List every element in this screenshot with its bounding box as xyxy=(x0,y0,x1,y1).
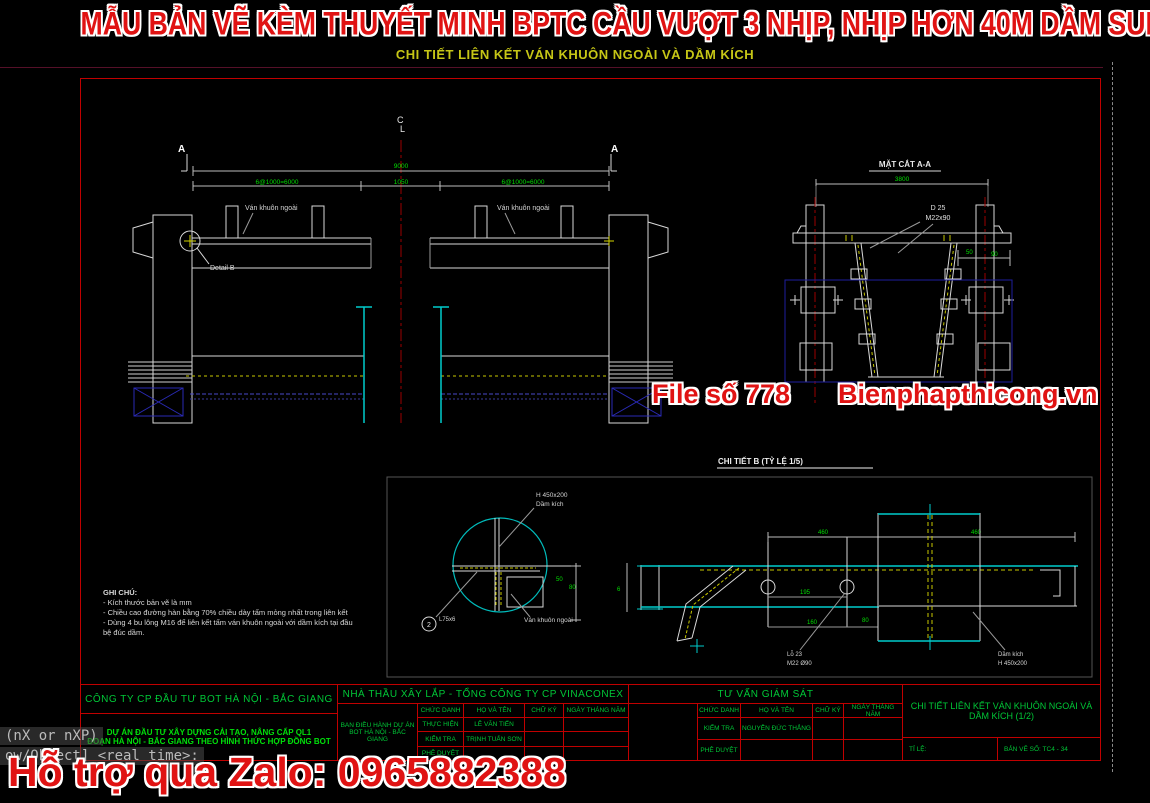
sheet-border-right xyxy=(1100,78,1101,761)
banner-divider xyxy=(0,67,1103,68)
sheet-margin-dashed xyxy=(1112,62,1113,772)
hole-label-1: Lỗ 23 xyxy=(787,651,803,658)
supervisor-r2-role: PHÊ DUYỆT xyxy=(697,739,741,761)
jack-line xyxy=(356,307,449,423)
end-wall-right xyxy=(609,215,648,423)
supervisor-col-role: CHỨC DANH xyxy=(697,703,741,718)
jack-size-label: H 450x200 xyxy=(536,492,568,499)
supervisor-col-date: NGÀY THÁNG NĂM xyxy=(843,703,903,718)
plan-detail-view: 460 460 195 160 80 Lỗ 23 M22 Ø90 Dầm kíc… xyxy=(641,504,1078,667)
note-line: - Kích thước bản vẽ là mm xyxy=(103,598,383,608)
contractor-r2-name: TRỊNH TUẤN SƠN xyxy=(463,731,525,747)
notes-title: GHI CHÚ: xyxy=(103,588,383,598)
supervisor-r2-signature xyxy=(812,739,844,761)
section-mark-a-right: A xyxy=(611,144,618,155)
formwork-post xyxy=(312,206,324,238)
contractor-r1-name: LÊ VĂN TIẾN xyxy=(463,717,525,732)
formwork-label-right: Ván khuôn ngoài xyxy=(497,205,550,212)
contractor-r3-date xyxy=(563,746,629,761)
contractor-col-date: NGÀY THÁNG NĂM xyxy=(563,703,629,718)
contractor-r1-date xyxy=(563,717,629,732)
note-line: - Dùng 4 bu lông M16 để liên kết tấm ván… xyxy=(103,618,383,628)
sheet-title-line1: CHI TIẾT LIÊN KẾT VÁN KHUÔN NGOÀI VÀ xyxy=(911,701,1093,711)
supervisor-col-name: HỌ VÀ TÊN xyxy=(740,703,813,718)
plan-dim-top-left: 460 xyxy=(818,530,829,536)
project-line2: ĐOẠN HÀ NỘI - BẮC GIANG THEO HÌNH THỨC H… xyxy=(87,737,331,746)
supervisor-r1-signature xyxy=(812,717,844,740)
contractor-r2-date xyxy=(563,731,629,747)
cross-beam xyxy=(793,233,1011,243)
scale-cell: TỈ LỆ: xyxy=(902,737,998,761)
angle-label: L75x6 xyxy=(439,617,456,623)
support-stack-left xyxy=(128,362,192,382)
dim-right: 6@1000=6000 xyxy=(502,179,545,186)
jack-label: Dầm kích xyxy=(536,499,564,508)
note-line: bệ đúc dầm. xyxy=(103,628,383,638)
note-line: - Chiều cao đường hàn bằng 70% chiều dày… xyxy=(103,608,383,618)
contractor-r2-role: KIỂM TRA xyxy=(417,731,464,747)
section-aa-view: MẶT CẮT A-A 3800 xyxy=(785,160,1014,404)
section-dim-b: 90 xyxy=(991,252,998,258)
drawing-number-cell: BẢN VẼ SỐ: TC4 - 34 xyxy=(997,737,1101,761)
contractor-col-role: CHỨC DANH xyxy=(417,703,464,718)
elevation-view: C L A A 9000 6@1000=6000 1050 6@1000=600… xyxy=(128,115,673,423)
project-line1: DỰ ÁN ĐẦU TƯ XÂY DỰNG CẢI TẠO, NÂNG CẤP … xyxy=(107,728,312,737)
contractor-col-name: HỌ VÀ TÊN xyxy=(463,703,525,718)
contractor-r1-signature xyxy=(524,717,564,732)
bolt-label-d25: D 25 xyxy=(931,205,946,212)
command-line-1: (nX or nXP) xyxy=(0,727,103,745)
dim-total: 9000 xyxy=(394,163,409,170)
detail-b-title: CHI TIẾT B (TỶ LỆ 1/5) xyxy=(718,456,803,466)
contractor-col-signature: CHỮ KÝ xyxy=(524,703,564,718)
formwork-label-left: Ván khuôn ngoài xyxy=(245,205,298,212)
sheet-border-top xyxy=(80,78,1101,79)
end-wall-left xyxy=(153,215,192,423)
plan-dim-side: 80 xyxy=(862,618,869,624)
callout-number: 2 xyxy=(427,622,431,629)
cad-sheet: C L A A 9000 6@1000=6000 1050 6@1000=600… xyxy=(0,0,1150,803)
bolt-label-m22: M22x90 xyxy=(926,215,951,222)
plan-dim-low: 160 xyxy=(807,620,818,626)
supervisor-r2-name xyxy=(740,739,813,761)
supervisor-r1-role: KIỂM TRA xyxy=(697,717,741,740)
section-aa-dim: 3800 xyxy=(895,176,910,183)
detail-dim-b: 80 xyxy=(569,585,576,591)
supervisor-blank-cell xyxy=(628,703,698,761)
formwork-post xyxy=(475,206,487,238)
contractor-r1-role: THỰC HIỆN xyxy=(417,717,464,732)
sheet-title-cell: CHI TIẾT LIÊN KẾT VÁN KHUÔN NGOÀI VÀ DẦM… xyxy=(902,684,1101,738)
supervisor-r1-name: NGUYỄN ĐỨC THẮNG xyxy=(740,717,813,740)
detail-b-label: Detail B xyxy=(210,265,235,272)
detail-frame xyxy=(387,477,1092,677)
detail-dim-c: 6 xyxy=(617,587,621,593)
foundation-box-left xyxy=(134,388,183,416)
jack-plan-label-2: H 450x200 xyxy=(998,661,1028,667)
detail-dim-a: 50 xyxy=(556,577,563,583)
section-dim-a: 50 xyxy=(966,250,973,256)
formwork-post xyxy=(561,206,573,238)
supervisor-r1-date xyxy=(843,717,903,740)
section-mark-a-left: A xyxy=(178,144,185,155)
contractor-r2-signature xyxy=(524,731,564,747)
board-line1: BAN ĐIỀU HÀNH DỰ ÁN xyxy=(341,722,415,729)
page-subtitle: CHI TIẾT LIÊN KẾT VÁN KHUÔN NGOÀI VÀ DẦM… xyxy=(0,47,1150,62)
watermark-site: Bienphapthicong.vn xyxy=(838,379,1098,410)
sheet-border-left xyxy=(80,78,81,761)
notes-block: GHI CHÚ: - Kích thước bản vẽ là mm - Chi… xyxy=(103,588,383,638)
detail-zoom-circle xyxy=(453,518,547,612)
dim-left: 6@1000=6000 xyxy=(256,179,299,186)
centerline-symbol-l: L xyxy=(400,124,405,134)
sheet-title-line2: DẦM KÍCH (1/2) xyxy=(969,711,1034,721)
board-line2: BOT HÀ NỘI - BẮC GIANG xyxy=(338,729,417,743)
dim-center: 1050 xyxy=(394,179,409,186)
plan-dim-mid: 195 xyxy=(800,590,811,596)
supervisor-header-cell: TƯ VẤN GIÁM SÁT xyxy=(628,684,903,704)
page-title: MẪU BẢN VẼ KÈM THUYẾT MINH BPTC CẦU VƯỢT… xyxy=(81,5,1070,43)
watermark-zalo: Hỗ trợ qua Zalo: 0965882388 xyxy=(8,749,566,796)
section-aa-title: MẶT CẮT A-A xyxy=(879,160,931,169)
formwork-label-detail: Ván khuôn ngoài xyxy=(524,617,573,624)
supervisor-col-signature: CHỮ KÝ xyxy=(812,703,844,718)
formwork-post xyxy=(226,206,238,238)
watermark-file-number: File số 778 xyxy=(652,379,790,410)
contractor-header-cell: NHÀ THẦU XÂY LẮP - TỔNG CÔNG TY CP VINAC… xyxy=(337,684,629,704)
supervisor-r2-date xyxy=(843,739,903,761)
owner-company-cell: CÔNG TY CP ĐẦU TƯ BOT HÀ NỘI - BẮC GIANG xyxy=(80,684,338,714)
jack-plan-label-1: Dầm kích xyxy=(998,652,1023,658)
hole-label-2: M22 Ø90 xyxy=(787,661,812,667)
